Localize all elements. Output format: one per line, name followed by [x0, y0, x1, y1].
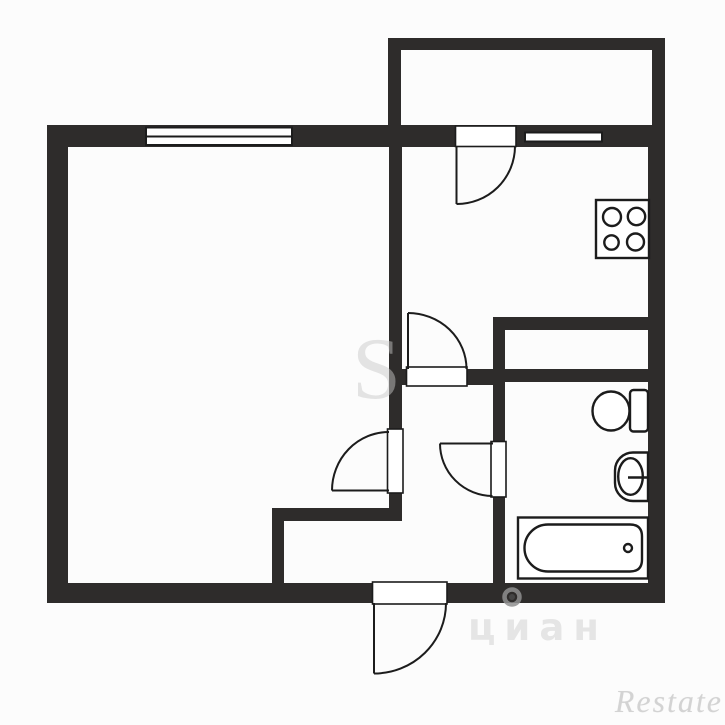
living-room-window — [146, 128, 292, 146]
fixtures — [518, 200, 649, 579]
balcony-door-opening — [456, 126, 517, 147]
wall-entry-notch-v — [272, 508, 284, 603]
wall-kitchen-duct — [493, 317, 653, 330]
wall-outer-bottom — [47, 583, 665, 603]
wall-duct-bathroom — [493, 369, 653, 382]
balcony-wall-right — [652, 38, 665, 130]
wall-outer-right — [648, 127, 665, 603]
sink-icon — [615, 453, 648, 502]
entrance-door — [374, 603, 446, 674]
bathroom-door — [440, 444, 493, 497]
watermark-restate: Restate — [463, 683, 723, 720]
kitchen-door-opening — [407, 367, 468, 386]
toilet-icon — [593, 390, 649, 432]
kitchen-door — [408, 313, 467, 369]
balcony-wall-top — [388, 38, 665, 50]
cian-logo-ring — [505, 590, 520, 605]
bathtub-icon — [518, 518, 648, 579]
floor-plan-image: S циан Restate — [0, 0, 725, 725]
living-door-opening — [388, 429, 404, 493]
wall-outer-left — [47, 125, 68, 603]
balcony-wall-left — [388, 38, 401, 130]
living-room-door — [332, 432, 389, 491]
stove-icon — [596, 200, 649, 258]
bathroom-door-opening — [491, 442, 506, 498]
kitchen-window — [525, 133, 602, 142]
watermark-letter: S — [352, 326, 401, 414]
watermark-cian: циан — [468, 606, 668, 649]
wall-entry-notch-h — [272, 508, 402, 521]
entrance-door-opening — [373, 582, 448, 604]
balcony-door — [457, 146, 516, 204]
